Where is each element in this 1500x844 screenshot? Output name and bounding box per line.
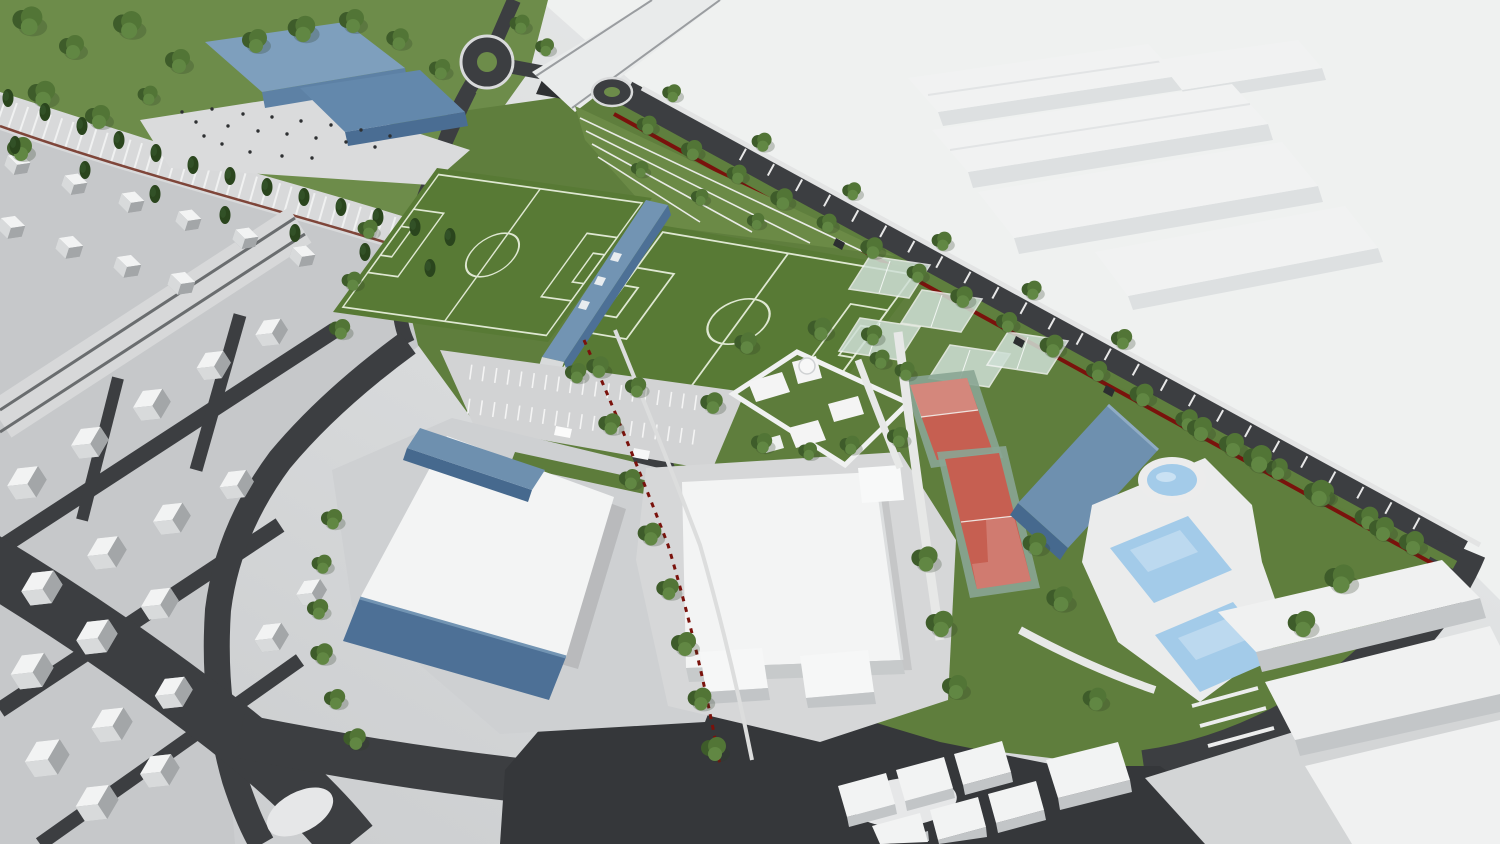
masterplan-render: Aerial 3D rendering of a sports complex …	[0, 0, 1500, 844]
dome	[799, 358, 815, 374]
